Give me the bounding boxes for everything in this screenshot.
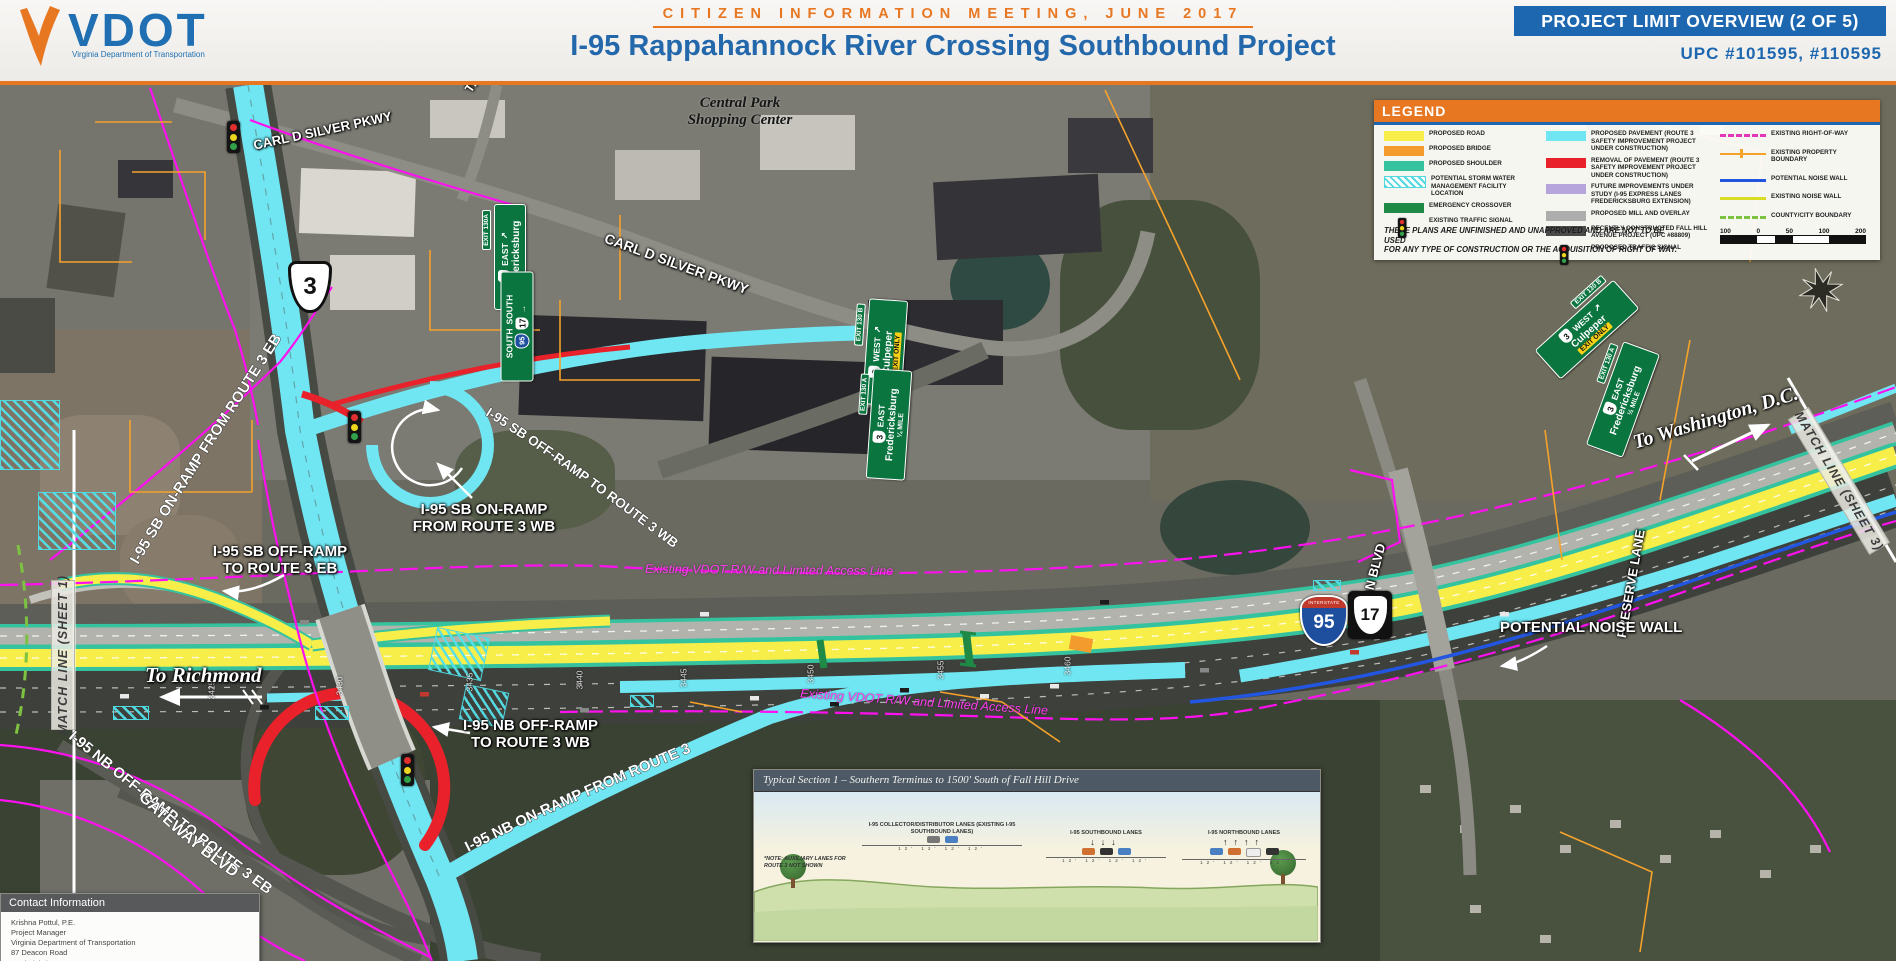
vdot-logo: VDOT Virginia Department of Transportati… <box>14 4 208 76</box>
swm-facility-area <box>38 492 116 550</box>
lane-direction-arrows: ↑↑↑↑ <box>1182 837 1306 847</box>
ramp-label-nb-off-to-3wb: I-95 NB OFF-RAMP TO ROUTE 3 WB <box>453 717 608 752</box>
sign-cardinal: WEST <box>870 337 882 362</box>
legend-item: EMERGENCY CROSSOVER <box>1384 202 1540 213</box>
i95-shield-banner: INTERSTATE <box>1302 597 1346 608</box>
emergency-crossover <box>966 632 970 666</box>
swm-facility-area <box>0 400 60 470</box>
vdot-wordmark: VDOT <box>68 4 208 56</box>
sign-cardinal: SOUTH <box>505 295 515 325</box>
sign-us17-shield: 17 <box>516 317 529 329</box>
scale-tick: 200 <box>1855 228 1866 235</box>
station-label: 3445 <box>678 669 688 688</box>
sign-route-shield: 3 <box>872 431 886 444</box>
legend-label: PROPOSED MILL AND OVERLAY <box>1591 210 1690 218</box>
traffic-signal-icon <box>1398 218 1406 238</box>
traffic-signal-icon <box>348 411 361 443</box>
rw-label-north: Existing VDOT R/W and Limited Access Lin… <box>645 562 893 578</box>
lane-dimensions: 12' 12' 12' 12' <box>1046 857 1166 863</box>
upc-numbers: UPC #101595, #110595 <box>1681 44 1883 64</box>
car-icon <box>1210 848 1223 855</box>
legend-line-row <box>1720 153 1766 155</box>
meeting-title: CITIZEN INFORMATION MEETING, JUNE 2017 <box>558 6 1348 22</box>
legend-label: PROPOSED BRIDGE <box>1429 145 1491 153</box>
legend-swatch <box>1546 131 1586 141</box>
legend-label: EMERGENCY CROSSOVER <box>1429 202 1511 210</box>
road-carl-d-silver <box>175 105 1148 349</box>
car-icon <box>1228 848 1241 855</box>
legend-label: FUTURE IMPROVEMENTS UNDER STUDY (I-95 EX… <box>1591 183 1710 206</box>
legend-title: LEGEND <box>1374 100 1880 125</box>
legend-label: EXISTING TRAFFIC SIGNAL <box>1429 217 1513 225</box>
contact-line: Project Manager <box>11 928 249 938</box>
station-label: 3430 <box>334 677 344 696</box>
place-label-line2: Shopping Center <box>660 112 820 129</box>
lane-group-nb: I-95 NORTHBOUND LANES ↑↑↑↑ 12' 12' 12' 1… <box>1182 830 1306 865</box>
car-icon <box>1118 848 1131 855</box>
vdot-swoosh-icon <box>14 4 66 76</box>
us17-shield: 17 <box>1348 591 1392 639</box>
scale-tick: 50 <box>1786 228 1793 235</box>
label-line: TO ROUTE 3 EB <box>205 560 355 577</box>
inset-note: *NOTE: AUXILIARY LANES FOR ROUTE 3 NOT S… <box>764 856 860 870</box>
legend-item: PROPOSED PAVEMENT (ROUTE 3 SAFETY IMPROV… <box>1546 130 1710 153</box>
lane-group-label: I-95 NORTHBOUND LANES <box>1182 830 1306 837</box>
sign-arrow-icon: ↗ <box>872 326 883 334</box>
contact-info-box: Contact Information Krishna Pottul, P.E.… <box>0 893 260 961</box>
legend-item: PROPOSED SHOULDER <box>1384 160 1540 171</box>
station-label: 3460 <box>1062 657 1072 676</box>
sign-cardinal: EAST <box>500 243 510 266</box>
legend-label: EXISTING PROPERTY BOUNDARY <box>1771 149 1872 164</box>
legend-swatch <box>1546 184 1586 194</box>
legend-label: PROPOSED PAVEMENT (ROUTE 3 SAFETY IMPROV… <box>1591 130 1710 153</box>
contact-line: Krishna Pottul, P.E. <box>11 918 249 928</box>
lane-group-sb: I-95 SOUTHBOUND LANES ↓↓↓ 12' 12' 12' 12… <box>1046 830 1166 863</box>
label-line: I-95 NB OFF-RAMP <box>453 717 608 734</box>
legend-swatch <box>1546 158 1586 168</box>
legend-label: PROPOSED ROAD <box>1429 130 1485 138</box>
ramp-label-sb-on-from-3wb: I-95 SB ON-RAMP FROM ROUTE 3 WB <box>404 501 564 536</box>
car-icon <box>945 836 958 843</box>
lane-group-cd: I-95 COLLECTOR/DISTRIBUTOR LANES (EXISTI… <box>862 822 1022 851</box>
station-label: 3435 <box>464 673 474 692</box>
legend-swatch <box>1546 211 1586 221</box>
lane-dimensions: 12' 12' 12' 12' <box>862 845 1022 851</box>
place-label-central-park: Central Park Shopping Center <box>660 95 820 128</box>
car-icon <box>927 836 940 843</box>
scale-bar: 100 0 50 100 200 <box>1720 228 1866 244</box>
match-line-1: MATCH LINE (SHEET 1) <box>51 580 75 730</box>
contact-line: 87 Deacon Road <box>11 948 249 958</box>
swm-facility-area <box>630 695 654 707</box>
lane-group-label: I-95 COLLECTOR/DISTRIBUTOR LANES (EXISTI… <box>862 822 1022 835</box>
disclaimer-line: FOR ANY TYPE OF CONSTRUCTION OR THE ACQU… <box>1384 245 1684 255</box>
legend-line-row <box>1720 134 1766 137</box>
us17-shield-number: 17 <box>1354 596 1387 634</box>
sign-arrow-icon: ↗ <box>499 232 510 239</box>
traffic-signal-icon <box>1560 245 1568 265</box>
place-label-line1: Central Park <box>660 95 820 112</box>
station-label: 3440 <box>574 671 584 690</box>
sheet: VDOT Virginia Department of Transportati… <box>0 0 1896 961</box>
legend-item: PROPOSED MILL AND OVERLAY <box>1546 210 1710 221</box>
legend-disclaimer: THESE PLANS ARE UNFINISHED AND UNAPPROVE… <box>1384 226 1684 255</box>
swm-facility-area <box>315 706 349 720</box>
legend-line-row <box>1720 216 1766 219</box>
legend-item: PROPOSED ROAD <box>1384 130 1540 141</box>
scale-bar-graphic <box>1720 235 1866 244</box>
contact-line: Virginia Department of Transportation <box>11 938 249 948</box>
exit-only-panel: EXIT ONLY <box>892 332 902 375</box>
legend-swatch <box>1384 161 1424 171</box>
sign-cardinal: EAST <box>875 404 887 427</box>
aerial-map: I-95 SB ON-RAMP FROM ROUTE 3 EB I-95 SB … <box>0 85 1896 961</box>
legend-swatch <box>1384 203 1424 213</box>
legend-label: REMOVAL OF PAVEMENT (ROUTE 3 SAFETY IMPR… <box>1591 157 1710 180</box>
traffic-signal-icon <box>401 754 414 786</box>
i95-shield-number: 95 <box>1302 608 1346 638</box>
vdot-tagline: Virginia Department of Transportation <box>72 50 208 59</box>
legend-label: PROPOSED SHOULDER <box>1429 160 1502 168</box>
legend-item: EXISTING NOISE WALL <box>1720 193 1872 201</box>
label-line: I-95 SB ON-RAMP <box>404 501 564 518</box>
swm-facility-area <box>1313 580 1341 591</box>
lane-dimensions: 12' 12' 12' 12' <box>1182 859 1306 865</box>
car-icon <box>1082 848 1095 855</box>
car-icon <box>1100 848 1113 855</box>
scale-tick: 100 <box>1819 228 1830 235</box>
legend-item: REMOVAL OF PAVEMENT (ROUTE 3 SAFETY IMPR… <box>1546 157 1710 180</box>
label-line: I-95 SB OFF-RAMP <box>205 543 355 560</box>
legend-label: POTENTIAL STORM WATER MANAGEMENT FACILIT… <box>1431 175 1540 198</box>
proposed-bridge-segment <box>1070 642 1092 646</box>
label-line: TO ROUTE 3 WB <box>453 734 608 751</box>
sign-arrow-icon: → <box>517 305 527 314</box>
legend-line-row <box>1720 179 1766 182</box>
sheet-badge: PROJECT LIMIT OVERVIEW (2 OF 5) <box>1514 6 1886 36</box>
disclaimer-line: THESE PLANS ARE UNFINISHED AND UNAPPROVE… <box>1384 226 1684 245</box>
emergency-crossover <box>820 640 824 668</box>
inset-title: Typical Section 1 – Southern Terminus to… <box>754 770 1320 792</box>
lane-group-label: I-95 SOUTHBOUND LANES <box>1046 830 1166 837</box>
legend-swatch-hatch <box>1384 176 1426 188</box>
typical-section-inset: Typical Section 1 – Southern Terminus to… <box>753 769 1321 943</box>
page-title: I-95 Rappahannock River Crossing Southbo… <box>558 30 1348 63</box>
legend-label: EXISTING RIGHT-OF-WAY <box>1771 130 1848 138</box>
exit-tab: EXIT 130A <box>482 210 491 250</box>
sign-i95-shield: 95 <box>515 333 530 348</box>
ramp-label-sb-off-to-3eb: I-95 SB OFF-RAMP TO ROUTE 3 EB <box>205 543 355 578</box>
car-icon <box>1246 848 1261 857</box>
station-label: 3455 <box>935 661 945 680</box>
title-divider <box>653 26 1253 28</box>
ramp-label-sb-on-from-3eb: I-95 SB ON-RAMP FROM ROUTE 3 EB <box>127 331 285 567</box>
contact-title: Contact Information <box>1 894 259 912</box>
ramp-pavement <box>660 350 985 470</box>
legend-item: COUNTY/CITY BOUNDARY <box>1720 212 1872 220</box>
car-icon <box>1266 848 1279 855</box>
legend-item: EXISTING PROPERTY BOUNDARY <box>1720 149 1872 164</box>
station-label: 3450 <box>805 665 815 684</box>
legend-label: EXISTING NOISE WALL <box>1771 193 1841 201</box>
ramp-label-nb-on-from-3: I-95 NB ON-RAMP FROM ROUTE 3 <box>462 740 693 856</box>
sign-cardinal: SOUTH <box>505 329 515 359</box>
ramp-sb-off-to-3wb <box>305 333 860 430</box>
guide-sign-130a-fredericksburg-2: EXIT 130 A 3EAST Fredericksburg ¼ MILE <box>866 368 913 480</box>
legend-item: EXISTING RIGHT-OF-WAY <box>1720 130 1872 138</box>
label-line: FROM ROUTE 3 WB <box>404 518 564 535</box>
legend-swatch <box>1384 146 1424 156</box>
legend-item: POTENTIAL STORM WATER MANAGEMENT FACILIT… <box>1384 175 1540 198</box>
traffic-signal-icon <box>227 121 240 153</box>
legend-line-row <box>1720 197 1766 200</box>
lane-direction-arrows: ↓↓↓ <box>1046 837 1166 847</box>
direction-label-richmond: To Richmond <box>145 663 262 688</box>
legend-item: PROPOSED BRIDGE <box>1384 145 1540 156</box>
scale-tick: 100 <box>1720 228 1731 235</box>
legend-label: POTENTIAL NOISE WALL <box>1771 175 1848 183</box>
legend-item: FUTURE IMPROVEMENTS UNDER STUDY (I-95 EX… <box>1546 183 1710 206</box>
legend-item: POTENTIAL NOISE WALL <box>1720 175 1872 183</box>
swm-facility-area <box>113 706 149 720</box>
guide-sign-95-17-south: SOUTHSOUTH 9517→ <box>501 272 534 382</box>
legend: LEGEND PROPOSED ROAD PROPOSED BRIDGE PRO… <box>1374 100 1880 260</box>
noise-wall-label: POTENTIAL NOISE WALL <box>1500 619 1682 636</box>
legend-swatch <box>1384 131 1424 141</box>
legend-label: COUNTY/CITY BOUNDARY <box>1771 212 1851 220</box>
scale-tick: 0 <box>1757 228 1761 235</box>
header: VDOT Virginia Department of Transportati… <box>0 0 1896 85</box>
